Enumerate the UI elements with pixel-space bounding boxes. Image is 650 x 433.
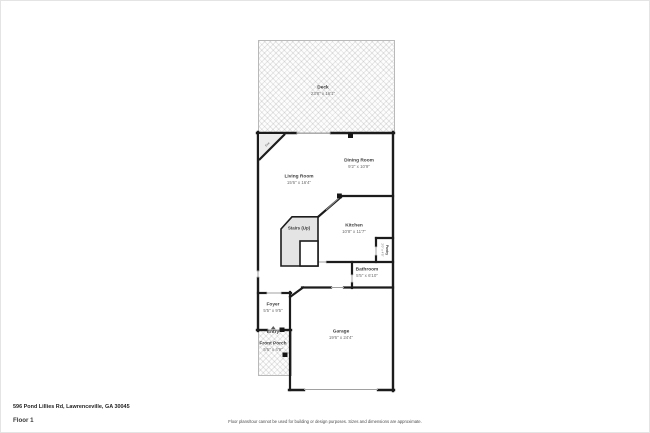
room-label-bathroom: Bathroom 5'5" x 6'10" <box>356 267 379 279</box>
room-name: Stairs (Up) <box>288 226 310 232</box>
floorplan-walls <box>0 0 650 433</box>
room-label-front-porch: Front Porch 5'6" x 4'9" <box>259 341 286 353</box>
room-name: Pantry <box>384 243 388 256</box>
room-label-garage: Garage 19'6" x 24'4" <box>329 329 353 341</box>
room-dims: 5'6" x 4'9" <box>259 347 286 353</box>
room-label-pantry: Pantry 2'0" x 4'5" <box>380 243 388 256</box>
room-dims: 5'5" x 6'10" <box>356 273 379 279</box>
room-label-living-room: Living Room 15'6" x 16'4" <box>284 174 313 186</box>
room-dims: 10'8" x 11'7" <box>342 229 366 235</box>
room-dims: 2'0" x 4'5" <box>380 243 384 256</box>
room-name: Living Room <box>284 174 313 180</box>
room-label-kitchen: Kitchen 10'8" x 11'7" <box>342 223 366 235</box>
room-name: Bathroom <box>356 267 379 273</box>
entry-arrow-icon <box>271 326 276 329</box>
room-dims: 23'8" x 16'1" <box>311 91 335 97</box>
room-label-entry: Entry <box>267 326 279 336</box>
room-label-foyer: Foyer 5'5" x 9'5" <box>263 302 282 314</box>
understairs-closet <box>300 241 318 266</box>
room-name: Front Porch <box>259 341 286 347</box>
address-text: 596 Pond Lillies Rd, Lawrenceville, GA 3… <box>13 404 130 410</box>
floorplan-page: Deck 23'8" x 16'1" Living Room 15'6" x 1… <box>0 0 650 433</box>
floor-label: Floor 1 <box>13 417 34 424</box>
room-dims: 5'5" x 9'5" <box>263 308 282 314</box>
room-label-deck: Deck 23'8" x 16'1" <box>311 85 335 97</box>
room-name: Kitchen <box>342 223 366 229</box>
room-label-stairs: Stairs (Up) <box>288 226 310 232</box>
room-name: Entry <box>267 330 279 336</box>
room-dims: 9'2" x 10'9" <box>344 164 374 170</box>
room-name: Dining Room <box>344 158 374 164</box>
room-label-dining-room: Dining Room 9'2" x 10'9" <box>344 158 374 170</box>
room-dims: 19'6" x 24'4" <box>329 335 353 341</box>
disclaimer-text: Floor plans/tour cannot be used for buil… <box>228 420 422 424</box>
room-dims: 15'6" x 16'4" <box>284 180 313 186</box>
